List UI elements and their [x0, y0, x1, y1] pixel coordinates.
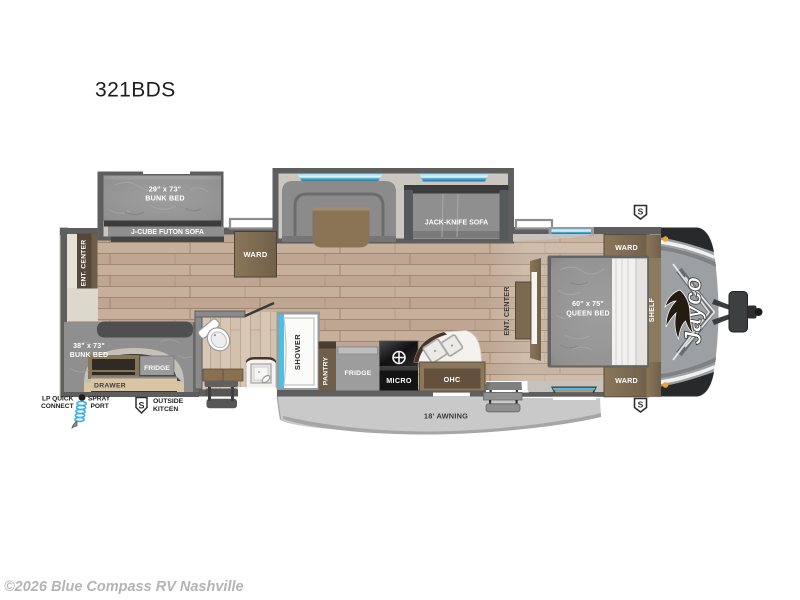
svg-text:PANTRY: PANTRY: [323, 357, 330, 386]
svg-text:321BDS: 321BDS: [95, 79, 176, 102]
svg-text:KITCEN: KITCEN: [153, 406, 178, 413]
svg-text:QUEEN BED: QUEEN BED: [566, 311, 609, 318]
svg-text:JACK-KNIFE SOFA: JACK-KNIFE SOFA: [425, 220, 488, 227]
svg-text:J-CUBE FUTON SOFA: J-CUBE FUTON SOFA: [131, 229, 204, 236]
svg-text:MICRO: MICRO: [386, 376, 412, 385]
svg-text:LP QUICK: LP QUICK: [42, 396, 74, 403]
svg-text:S: S: [638, 400, 644, 410]
svg-text:OUTSIDE: OUTSIDE: [153, 398, 184, 405]
svg-text:SPRAY: SPRAY: [88, 396, 111, 403]
svg-text:FRIDGE: FRIDGE: [345, 370, 372, 377]
svg-text:SHELF: SHELF: [649, 297, 656, 322]
svg-text:18' AWNING: 18' AWNING: [424, 412, 468, 421]
svg-text:60" x 75": 60" x 75": [572, 301, 604, 308]
svg-text:OHC: OHC: [444, 375, 461, 384]
svg-text:©2026 Blue Compass RV Nashvill: ©2026 Blue Compass RV Nashville: [4, 579, 244, 595]
svg-text:BUNK BED: BUNK BED: [70, 352, 109, 359]
svg-text:38" x 73": 38" x 73": [73, 343, 105, 350]
svg-text:WARD: WARD: [615, 243, 638, 252]
svg-text:ENT. CENTER: ENT. CENTER: [81, 240, 88, 287]
svg-text:S: S: [138, 401, 144, 411]
svg-text:BUNK BED: BUNK BED: [145, 194, 185, 203]
svg-text:PORT: PORT: [91, 403, 109, 410]
svg-text:DRAWER: DRAWER: [94, 383, 126, 390]
svg-text:WARD: WARD: [615, 376, 638, 385]
svg-text:SHOWER: SHOWER: [293, 334, 302, 370]
svg-text:S: S: [638, 207, 644, 217]
svg-text:29" x 73": 29" x 73": [149, 185, 182, 194]
svg-text:FRIDGE: FRIDGE: [144, 365, 170, 372]
svg-text:CONNECT: CONNECT: [41, 403, 74, 410]
svg-text:WARD: WARD: [243, 250, 267, 259]
svg-text:ENT. CENTER: ENT. CENTER: [502, 286, 511, 336]
